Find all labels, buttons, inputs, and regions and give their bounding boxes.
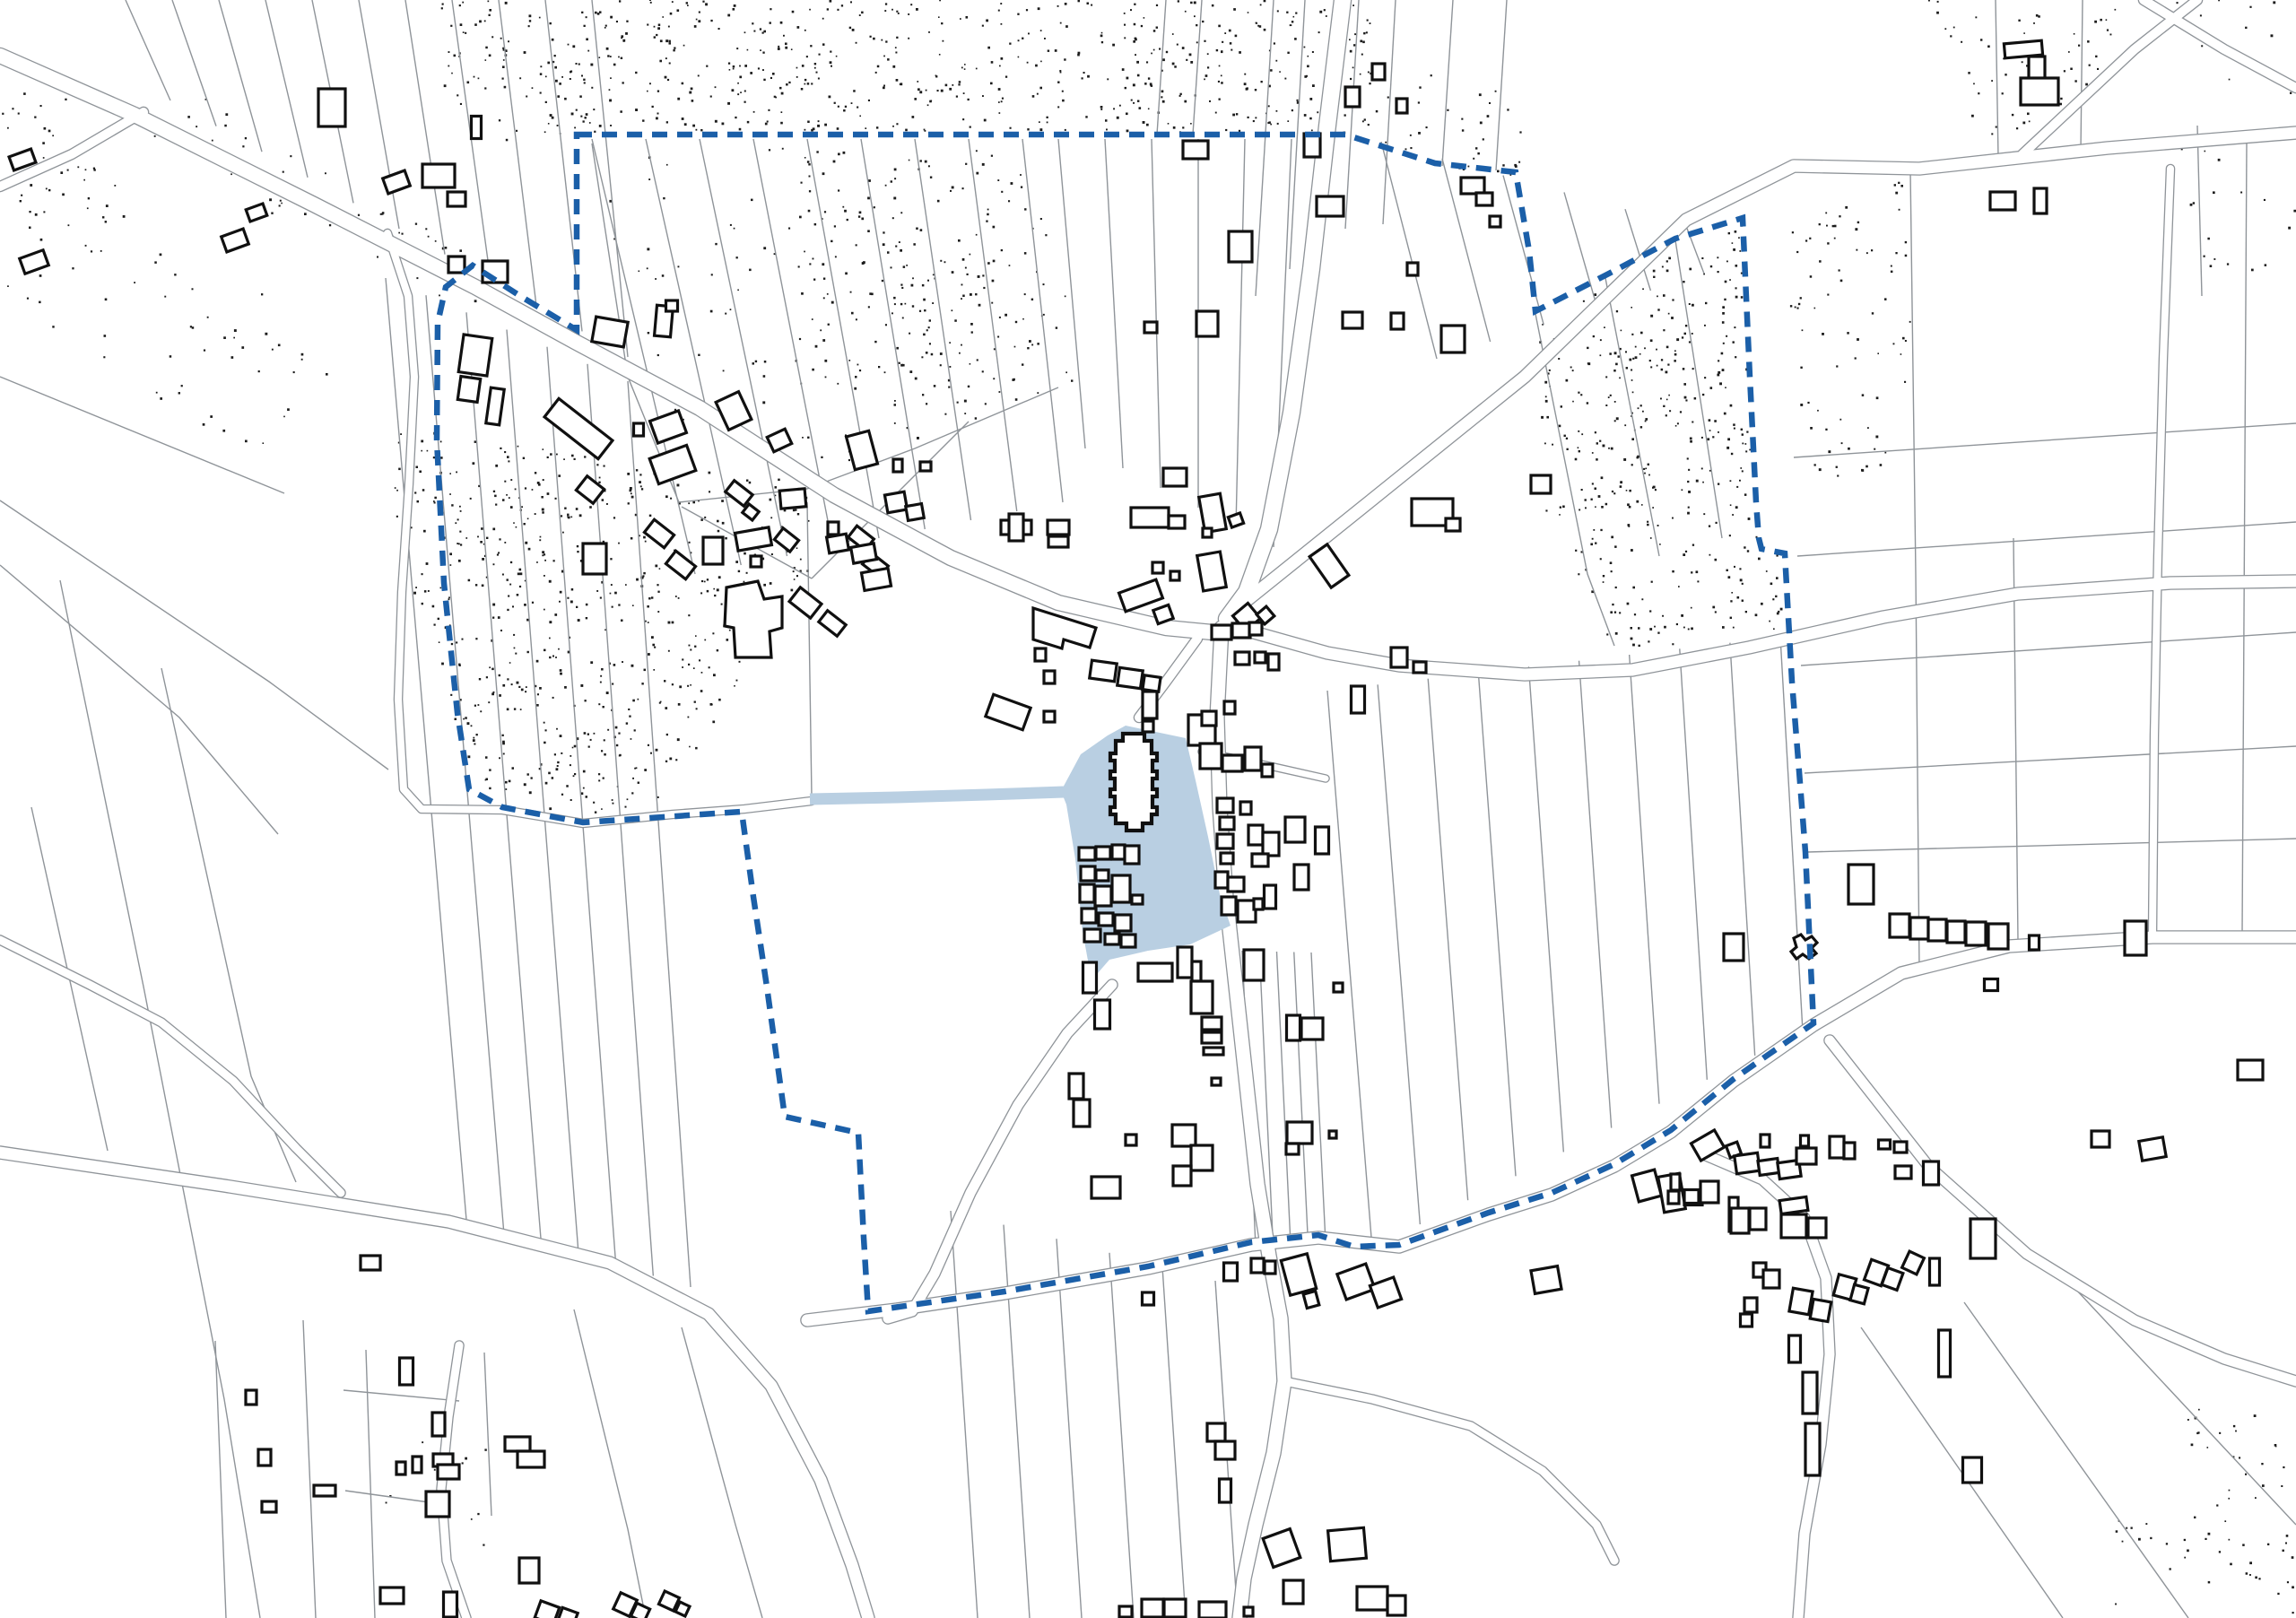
church-building xyxy=(1110,734,1157,831)
cadastral-map xyxy=(0,0,2296,1618)
map-viewport xyxy=(0,0,2296,1618)
stream-line xyxy=(810,792,1064,799)
